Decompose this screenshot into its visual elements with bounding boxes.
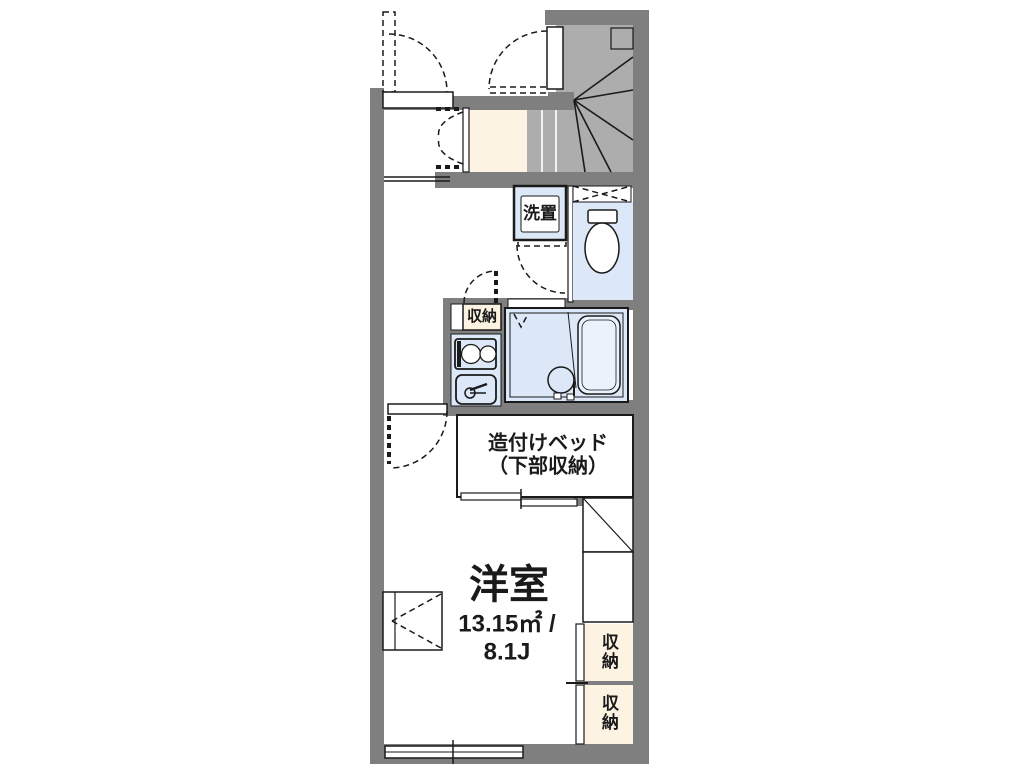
sink (456, 375, 496, 404)
bed-label-line1: 造付けベッド (488, 434, 608, 455)
porch-threshold (383, 92, 453, 108)
storage-upper-label: 収納 (599, 633, 617, 671)
toilet-window (573, 186, 631, 202)
entrance-door-leaf (547, 27, 563, 89)
floor-plan: 洗置 収納 造付けベッド （下部収納） 洋室 13.15㎡ / 8.1J 収納 … (0, 0, 1017, 772)
entrance-door (489, 27, 563, 93)
storage-upper-door (576, 624, 584, 681)
toilet-fixture (585, 210, 619, 273)
bathroom-door-frame (508, 299, 565, 308)
toilet-room (573, 186, 633, 300)
genkan-floor (462, 110, 527, 172)
storage-lower-label: 収納 (599, 694, 617, 732)
kitchen-storage-label: 収納 (467, 309, 497, 325)
toilet-partition (568, 186, 573, 302)
stair-landing-post (611, 28, 633, 49)
left-casement-window (383, 592, 442, 650)
main-room-size: 8.1J (484, 639, 531, 664)
washer-label: 洗置 (523, 205, 557, 223)
main-room-name: 洋室 (469, 564, 549, 606)
storage-lower-door (576, 685, 584, 744)
refrigerator-space (583, 498, 633, 622)
porch-door (383, 12, 453, 108)
bathtub (578, 316, 620, 394)
main-room-area: 13.15㎡ / (458, 611, 555, 636)
bed-label-line2: （下部収納） (488, 457, 608, 478)
bathroom (505, 299, 628, 402)
